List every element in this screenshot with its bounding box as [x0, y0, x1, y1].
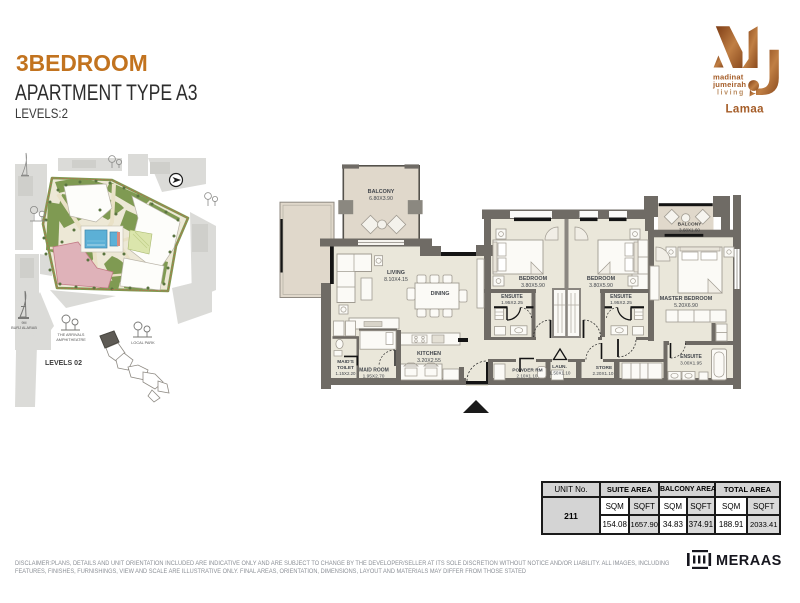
svg-text:KITCHEN: KITCHEN — [417, 351, 441, 357]
svg-text:BEDROOM: BEDROOM — [519, 276, 548, 282]
svg-text:1.95X2.25: 1.95X2.25 — [610, 300, 632, 306]
svg-text:MAID'S: MAID'S — [337, 359, 354, 365]
svg-text:MAID ROOM: MAID ROOM — [359, 368, 389, 374]
svg-text:2.20X1.10: 2.20X1.10 — [593, 371, 614, 376]
svg-text:DINING: DINING — [431, 291, 450, 297]
svg-text:3.80X5.90: 3.80X5.90 — [521, 283, 545, 289]
svg-text:6.80X3.90: 6.80X3.90 — [369, 196, 393, 202]
svg-text:1.95X2.70: 1.95X2.70 — [363, 374, 385, 380]
svg-text:1.50X1.10: 1.50X1.10 — [550, 371, 571, 376]
svg-text:ENSUITE: ENSUITE — [610, 294, 632, 300]
svg-text:ENSUITE: ENSUITE — [680, 354, 702, 360]
svg-text:ENSUITE: ENSUITE — [501, 294, 523, 300]
svg-text:1.15X2.20: 1.15X2.20 — [335, 371, 356, 376]
svg-text:3.80X5.90: 3.80X5.90 — [589, 283, 613, 289]
svg-text:LAUN.: LAUN. — [552, 364, 567, 370]
svg-text:1.95X2.25: 1.95X2.25 — [501, 300, 523, 306]
svg-text:3.00X1.95: 3.00X1.95 — [680, 361, 702, 367]
svg-text:8.10X4.15: 8.10X4.15 — [384, 277, 408, 283]
svg-text:BEDROOM: BEDROOM — [587, 276, 616, 282]
svg-text:3.20X2.55: 3.20X2.55 — [417, 358, 441, 364]
svg-text:BALCONY: BALCONY — [368, 189, 395, 195]
svg-text:MASTER BEDROOM: MASTER BEDROOM — [660, 296, 713, 302]
svg-text:3.68X1.60: 3.68X1.60 — [679, 228, 700, 233]
svg-text:2.10X1.10: 2.10X1.10 — [517, 374, 538, 379]
svg-text:LIVING: LIVING — [387, 270, 405, 276]
svg-text:5.20X6.90: 5.20X6.90 — [674, 303, 698, 309]
svg-text:MERAAS: MERAAS — [716, 553, 782, 569]
